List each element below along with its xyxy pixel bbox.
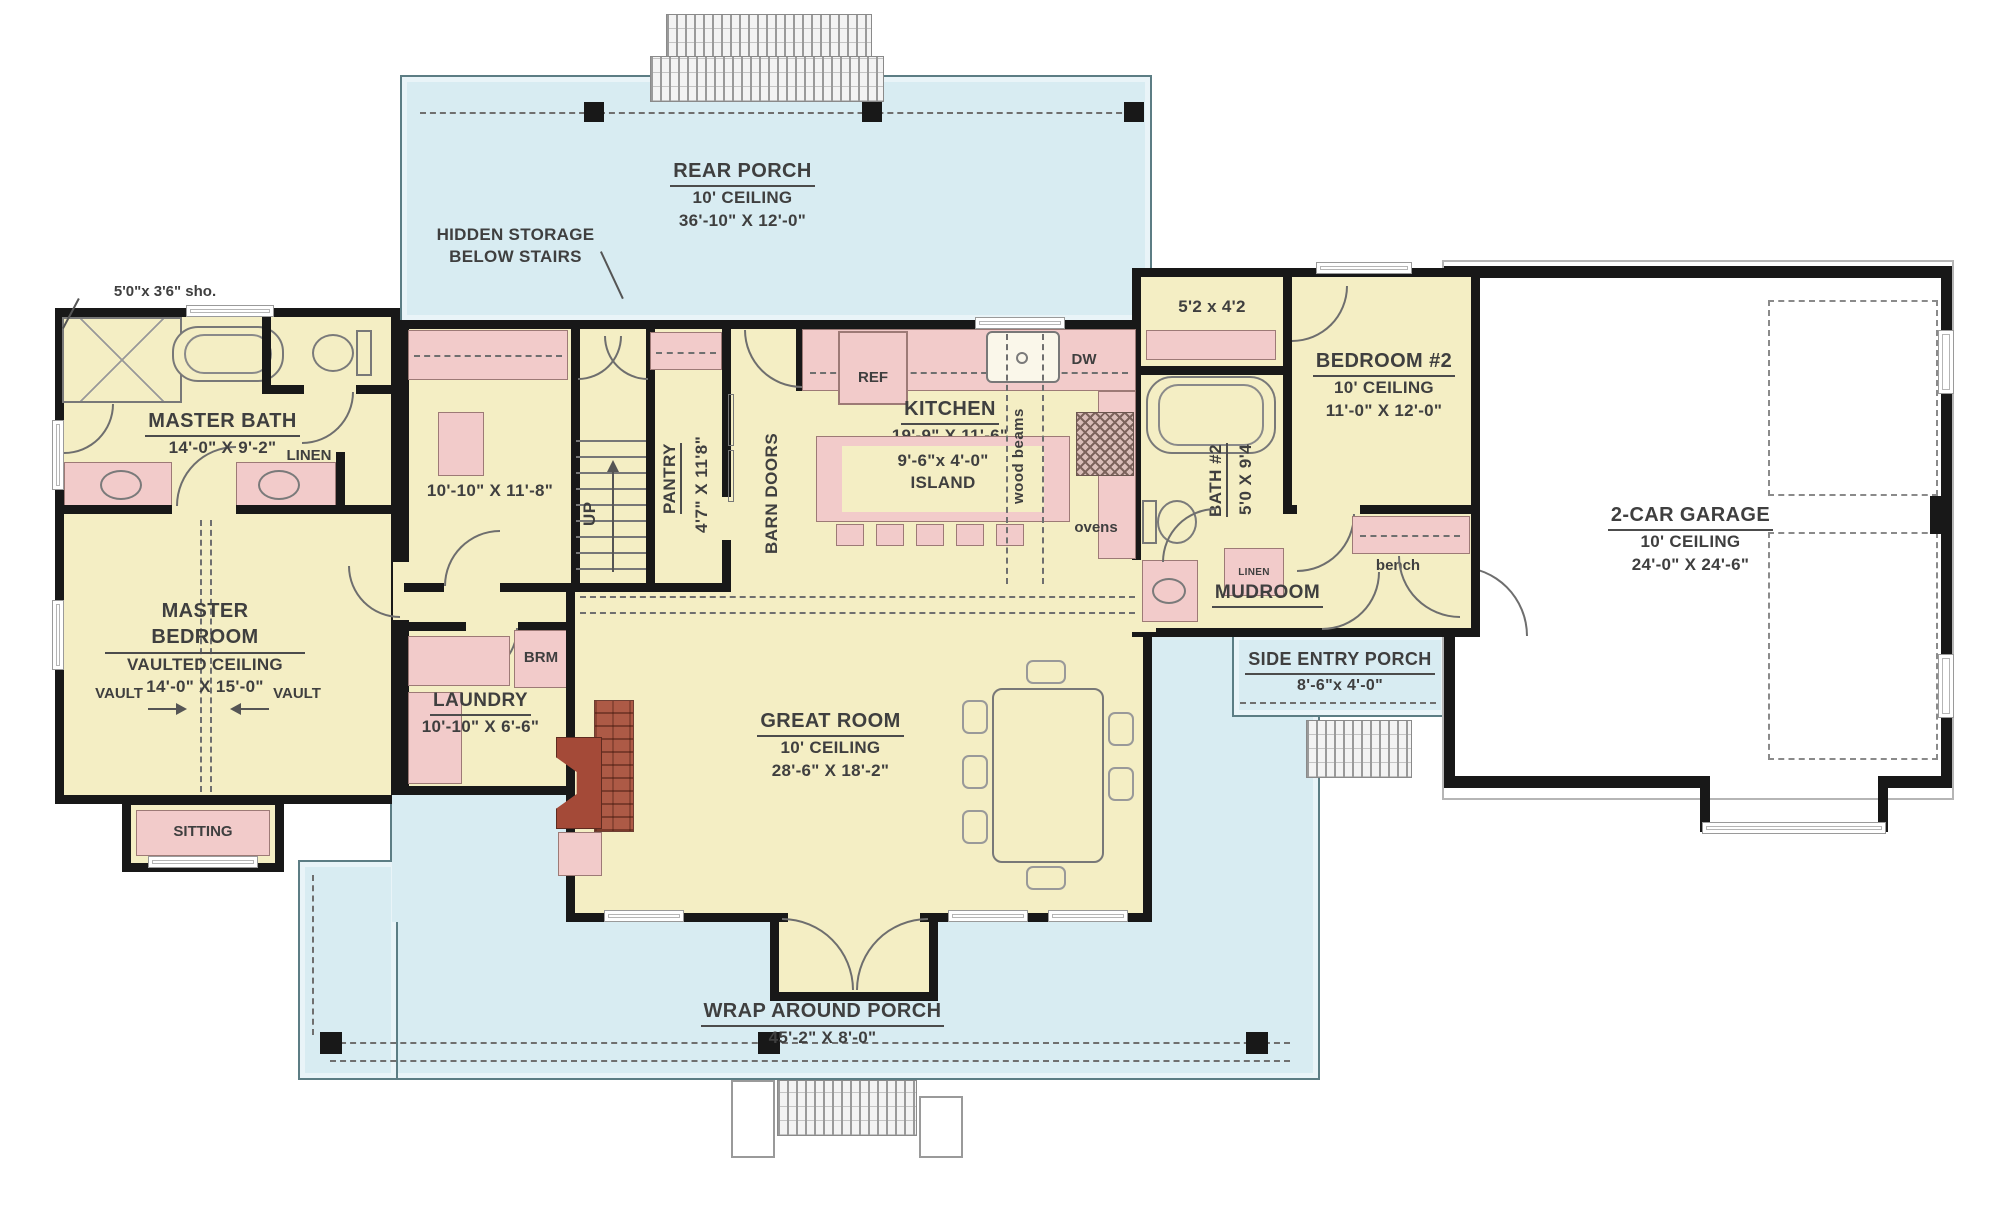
bath-bedroom-wall xyxy=(55,505,172,514)
master-bath-label: MASTER BATH 14'-0" X 9'-2" xyxy=(130,408,315,460)
garage-post xyxy=(1930,496,1952,534)
laundry-counter xyxy=(408,636,510,686)
toilet-bowl xyxy=(312,334,354,372)
ref-label: REF xyxy=(838,368,908,388)
dining-chair xyxy=(1026,866,1066,890)
vault-arrow-line xyxy=(241,708,269,710)
bath-bedroom-wall xyxy=(236,505,400,514)
vault-right-label: VAULT xyxy=(262,684,332,704)
window xyxy=(52,420,64,490)
porch-post xyxy=(320,1032,342,1054)
sitting-label: SITTING xyxy=(136,822,270,842)
closet2-shelf xyxy=(1146,330,1276,360)
closet-dresser xyxy=(438,412,484,476)
wall xyxy=(500,583,575,592)
bench-dash xyxy=(1360,535,1460,537)
island-stool xyxy=(956,524,984,546)
vault-arrow-left xyxy=(230,703,241,715)
dining-chair xyxy=(962,810,988,844)
garage-window xyxy=(1938,330,1954,394)
dining-table xyxy=(992,688,1104,863)
pantry-shelf-dash xyxy=(656,352,716,354)
ceiling-break xyxy=(580,596,1135,598)
barn-door-panel xyxy=(728,450,734,502)
bath2-toilet-tank xyxy=(1142,500,1157,544)
wrap-porch-rail-left xyxy=(312,875,314,1035)
shower-note: 5'0"x 3'6" sho. xyxy=(90,282,240,302)
garage-bay-1 xyxy=(1768,300,1938,496)
pantry-name: PANTRY xyxy=(660,404,686,554)
floor-plan: LINEN MASTER BATH 14'-0" X 9'-2" 5'0"x 3… xyxy=(0,0,2000,1227)
master-bath-dims: 14'-0" X 9'-2" xyxy=(130,437,315,459)
window xyxy=(975,317,1065,329)
rear-steps xyxy=(650,56,884,102)
wall xyxy=(722,540,731,588)
garage-window xyxy=(1938,654,1954,718)
island-stool xyxy=(836,524,864,546)
wc-wall xyxy=(262,385,304,394)
master-tub-inner xyxy=(184,334,272,374)
garage-wall-left xyxy=(1444,636,1455,788)
garage-wall-bottom xyxy=(1444,776,1710,788)
sink xyxy=(258,470,300,500)
up-label: UP xyxy=(580,492,600,536)
window xyxy=(52,600,64,670)
wall xyxy=(404,583,444,592)
window xyxy=(1316,262,1412,274)
side-porch-label: SIDE ENTRY PORCH 8'-6"x 4'-0" xyxy=(1240,648,1440,696)
window xyxy=(1048,910,1128,922)
side-steps xyxy=(1306,720,1412,778)
master-bath-name: MASTER BATH xyxy=(145,408,299,437)
wing-wall xyxy=(1283,505,1297,514)
porch-post xyxy=(862,102,882,122)
toilet-tank xyxy=(356,330,372,376)
bath2-dims: 5'0 X 9'4 xyxy=(1236,424,1258,534)
island-stool xyxy=(916,524,944,546)
wing-wall xyxy=(1360,505,1480,514)
barn-doors-label: BARN DOORS xyxy=(762,408,788,578)
front-steps xyxy=(777,1080,917,1136)
ceiling-break xyxy=(580,612,1135,614)
garage-bay-window xyxy=(1702,822,1886,834)
wrap-porch-label: WRAP AROUND PORCH 45'-2" X 8'-0" xyxy=(695,998,950,1050)
wc-wall xyxy=(356,385,402,394)
porch-post xyxy=(584,102,604,122)
window xyxy=(148,856,258,868)
wrap-porch-rail xyxy=(330,1060,1290,1062)
porch-post xyxy=(1246,1032,1268,1054)
stair-up-arrow-line xyxy=(612,472,614,572)
dining-chair xyxy=(962,700,988,734)
wood-beams-label: wood beams xyxy=(1010,396,1038,516)
closet2-label: 5'2 x 4'2 xyxy=(1150,296,1274,318)
dining-chair xyxy=(1108,712,1134,746)
dining-chair xyxy=(962,755,988,789)
porch-notch xyxy=(392,795,568,922)
wall xyxy=(571,583,731,592)
master-bedroom-ceiling: VAULTED CEILING xyxy=(105,654,305,676)
great-room-label: GREAT ROOM 10' CEILING 28'-6" X 18'-2" xyxy=(723,708,938,782)
garage-label: 2-CAR GARAGE 10' CEILING 24'-0" X 24'-6" xyxy=(1558,502,1823,576)
linen2-label: LINEN xyxy=(1224,566,1284,579)
vault-arrow-line xyxy=(148,708,176,710)
front-steps-rail xyxy=(919,1096,963,1158)
window xyxy=(948,910,1028,922)
fireplace-hearth xyxy=(558,832,602,876)
vault-left-label: VAULT xyxy=(84,684,154,704)
wood-beam xyxy=(1042,334,1044,584)
rear-porch-label: REAR PORCH 10' CEILING 36'-10" X 12'-0" xyxy=(625,158,860,232)
rear-steps xyxy=(666,14,872,58)
laundry-wall-bottom xyxy=(400,786,575,795)
vestibule-opening xyxy=(788,913,920,923)
rear-porch-rail xyxy=(420,112,1132,114)
closet-dims-label: 10'-10" X 11'-8" xyxy=(415,480,565,502)
pantry-dims: 4'7" X 11'8" xyxy=(692,400,714,568)
brm-label: BRM xyxy=(514,648,568,668)
wood-beam xyxy=(1006,334,1008,584)
island-stool xyxy=(996,524,1024,546)
hidden-storage-label: HIDDEN STORAGE BELOW STAIRS xyxy=(408,224,623,269)
closet-shelf-dash xyxy=(414,355,562,357)
laundry-wall-top xyxy=(400,622,466,631)
front-steps-rail xyxy=(731,1080,775,1158)
island-stool xyxy=(876,524,904,546)
dining-chair xyxy=(1026,660,1066,684)
master-bedroom-name: MASTER BEDROOM xyxy=(105,598,305,654)
stair-up-arrow xyxy=(607,460,619,472)
window xyxy=(186,305,274,317)
porch-post xyxy=(1124,102,1144,122)
wc-wall xyxy=(262,317,271,392)
window xyxy=(604,910,684,922)
sink xyxy=(100,470,142,500)
pantry-shelving xyxy=(650,332,722,370)
sink-drain xyxy=(1016,352,1028,364)
barn-door-panel xyxy=(728,394,734,446)
wing-wall xyxy=(1283,277,1292,513)
garage-wall-top xyxy=(1444,266,1952,278)
wing-wall xyxy=(1141,366,1283,375)
garage-wall-bottom xyxy=(1878,776,1952,788)
dining-chair xyxy=(1108,767,1134,801)
shower xyxy=(62,317,182,403)
side-porch-rail xyxy=(1240,702,1436,704)
laundry-label: LAUNDRY 10'-10" X 6'-6" xyxy=(398,688,563,739)
vault-arrow-right xyxy=(176,703,187,715)
dw-label: DW xyxy=(1062,350,1106,370)
bath2-sink xyxy=(1152,578,1186,604)
range-ovens xyxy=(1076,412,1134,476)
bedroom2-label: BEDROOM #2 10' CEILING 11'-0" X 12'-0" xyxy=(1294,348,1474,422)
